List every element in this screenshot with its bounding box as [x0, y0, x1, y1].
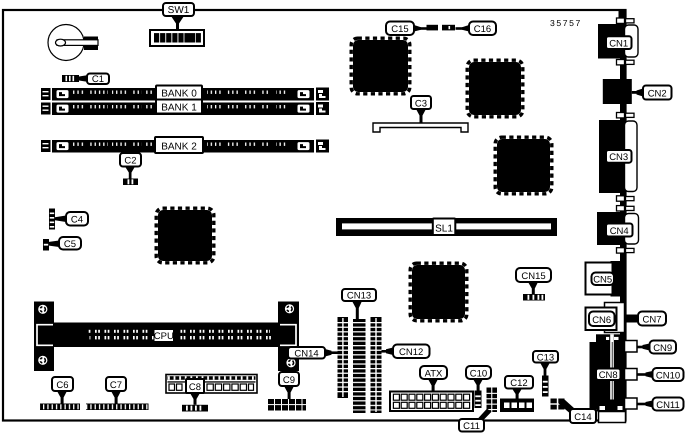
- svg-text:CN3: CN3: [609, 152, 628, 163]
- svg-text:SW1: SW1: [168, 5, 190, 16]
- svg-text:CN14: CN14: [294, 348, 318, 359]
- svg-text:35757: 35757: [550, 18, 582, 28]
- svg-text:CPU: CPU: [154, 331, 174, 342]
- svg-text:SL1: SL1: [435, 223, 453, 234]
- svg-text:BANK 1: BANK 1: [161, 102, 197, 113]
- svg-text:C8: C8: [189, 382, 201, 393]
- svg-text:CN7: CN7: [642, 315, 661, 326]
- svg-text:BANK 2: BANK 2: [161, 141, 197, 152]
- svg-text:C9: C9: [283, 375, 295, 386]
- svg-text:C13: C13: [537, 352, 554, 363]
- svg-text:C4: C4: [71, 215, 83, 226]
- svg-text:BANK 0: BANK 0: [161, 88, 197, 99]
- svg-text:CN1: CN1: [609, 38, 628, 49]
- svg-text:C3: C3: [415, 98, 427, 109]
- svg-text:C1: C1: [92, 74, 104, 85]
- svg-text:CN4: CN4: [610, 226, 629, 237]
- svg-text:CN6: CN6: [592, 315, 611, 326]
- svg-text:ATX: ATX: [425, 368, 443, 379]
- svg-text:CN15: CN15: [521, 271, 545, 282]
- svg-text:C2: C2: [124, 156, 136, 167]
- svg-text:CN13: CN13: [347, 291, 371, 302]
- svg-text:CN8: CN8: [599, 370, 618, 381]
- svg-text:CN9: CN9: [653, 343, 672, 354]
- svg-text:CN12: CN12: [399, 347, 423, 358]
- svg-text:C5: C5: [64, 239, 76, 250]
- svg-text:C16: C16: [474, 24, 491, 35]
- svg-text:CN11: CN11: [656, 400, 680, 411]
- svg-text:C15: C15: [391, 24, 408, 35]
- svg-text:CN10: CN10: [656, 370, 680, 381]
- svg-text:CN5: CN5: [593, 275, 612, 286]
- svg-text:C11: C11: [463, 421, 480, 432]
- svg-text:CN2: CN2: [648, 88, 667, 99]
- svg-text:C6: C6: [56, 380, 68, 391]
- svg-text:C12: C12: [510, 378, 527, 389]
- svg-text:C10: C10: [470, 368, 487, 379]
- svg-text:C14: C14: [574, 412, 591, 423]
- svg-text:C7: C7: [110, 380, 122, 391]
